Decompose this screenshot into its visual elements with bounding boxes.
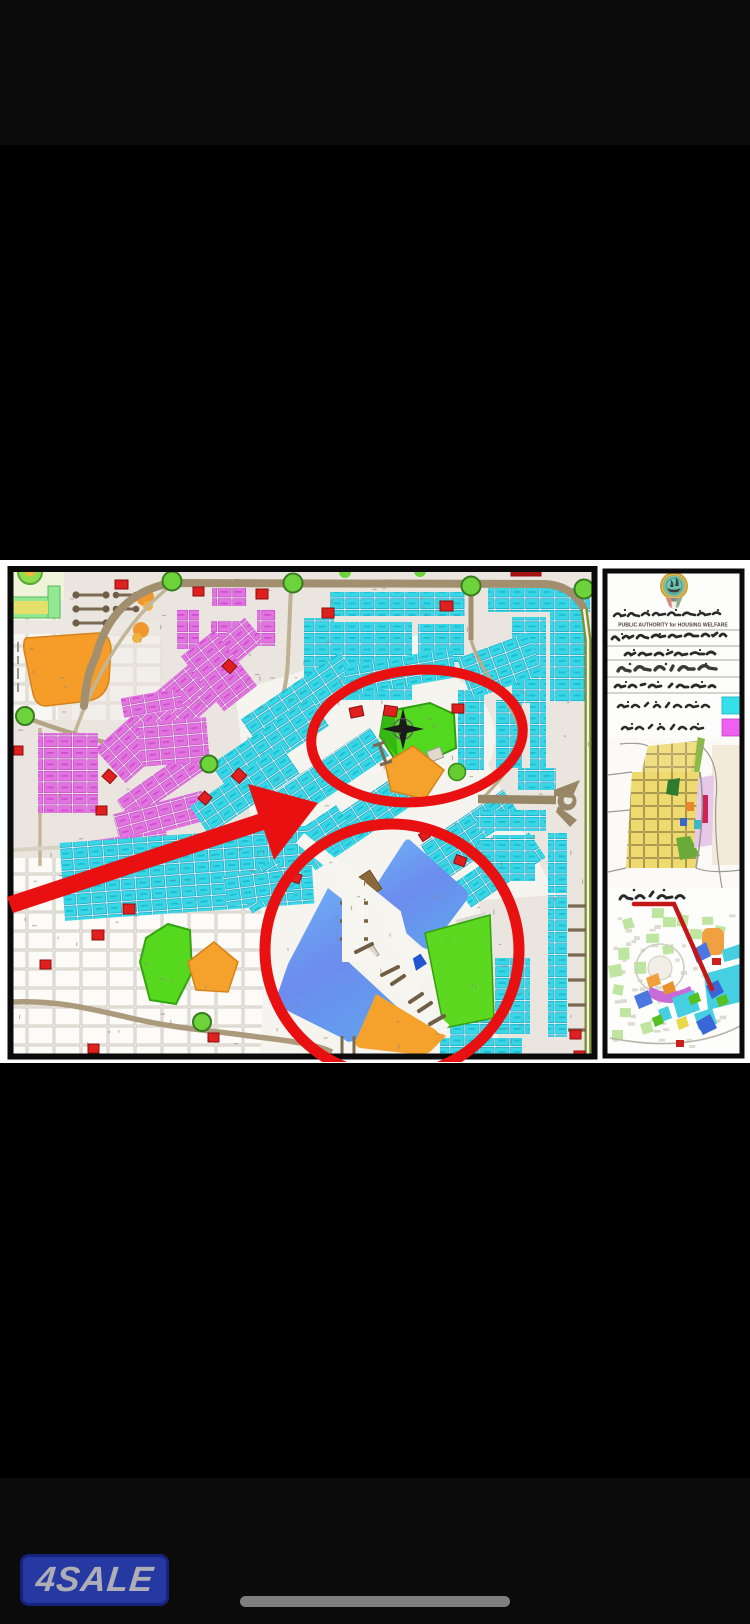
svg-text:PUBLIC AUTHORITY for HOUSIN: PUBLIC AUTHORITY for HOUSING WELFARE	[618, 623, 728, 629]
